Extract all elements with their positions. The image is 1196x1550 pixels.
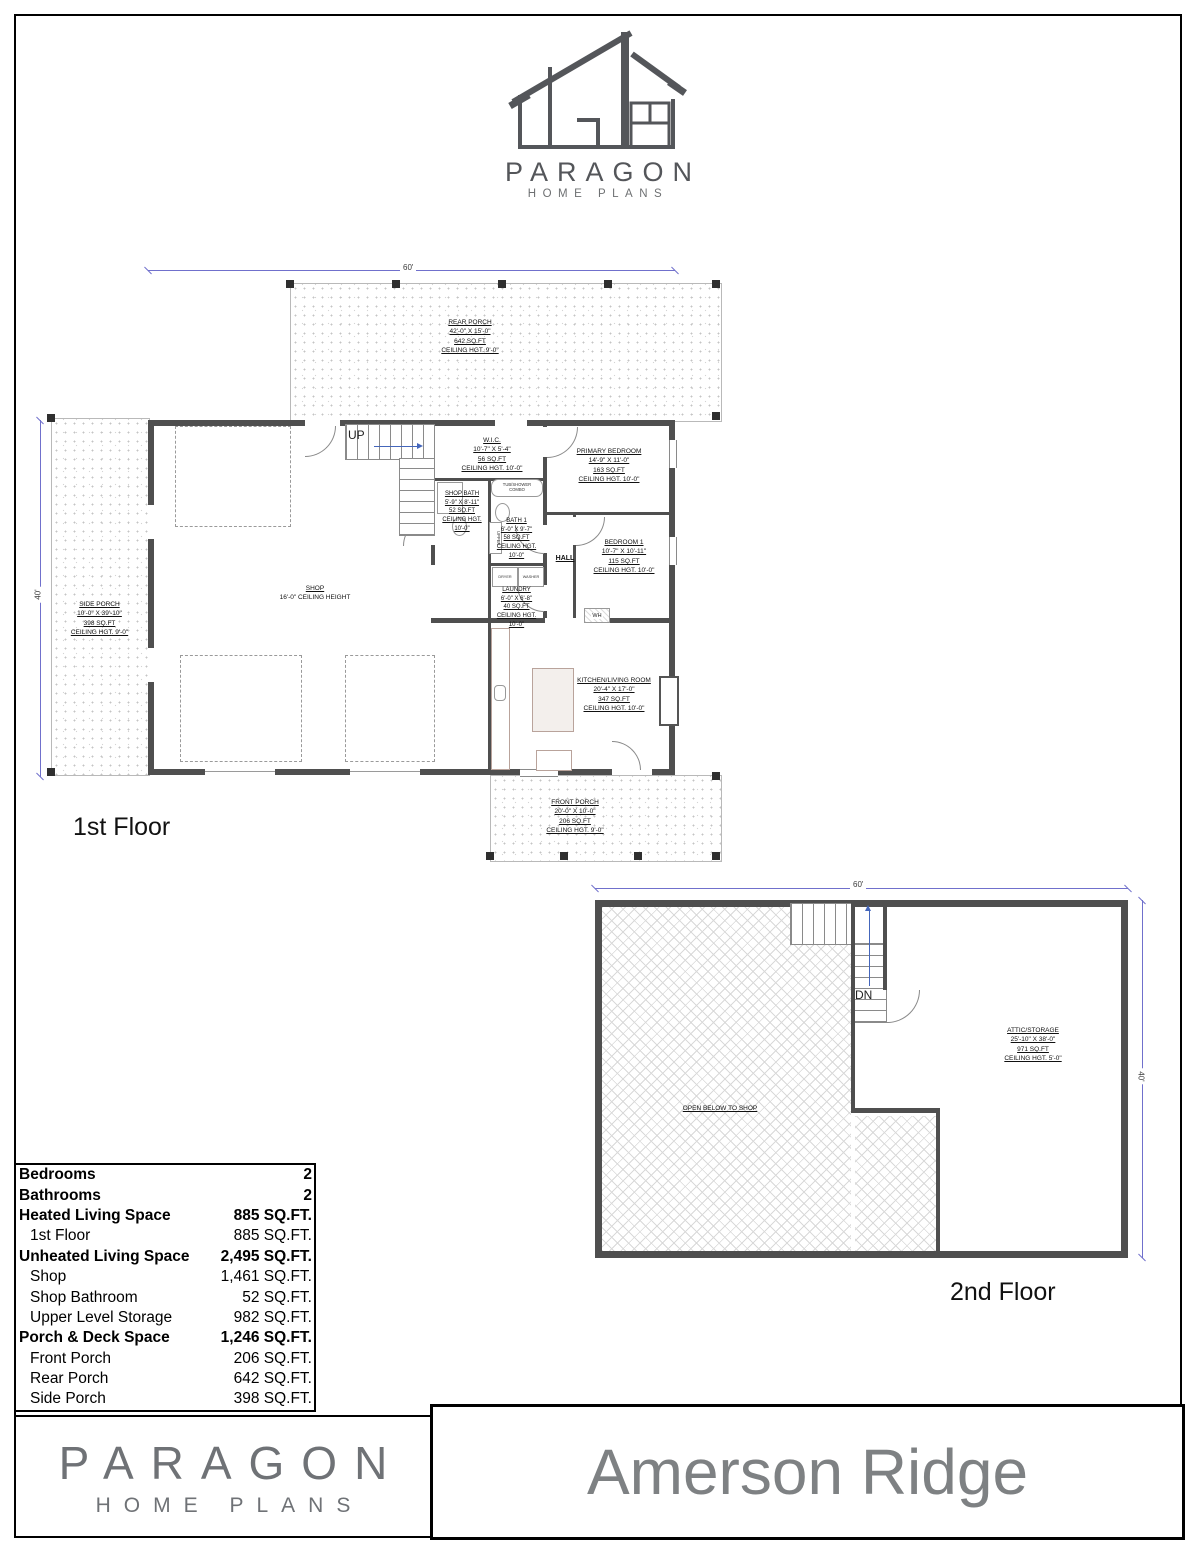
table-row: Shop1,461 SQ.FT. xyxy=(16,1267,314,1287)
stairs-up-arrowhead xyxy=(417,443,423,449)
footer-brand-box: PARAGON HOME PLANS xyxy=(14,1415,432,1538)
attic-storage-label: ATTIC/STORAGE 25'-10" X 38'-0" 971 SQ.FT… xyxy=(972,1026,1094,1064)
table-row: Side Porch398 SQ.FT. xyxy=(16,1389,314,1409)
shop-dashed-zone xyxy=(175,426,291,527)
row-label: Upper Level Storage xyxy=(30,1309,172,1327)
table-row: Heated Living Space885 SQ.FT. xyxy=(16,1206,314,1226)
porch-column xyxy=(712,852,720,860)
washer-box: WASHER xyxy=(518,567,544,587)
row-value: 885 SQ.FT. xyxy=(234,1207,312,1225)
washer-label: WASHER xyxy=(523,575,540,579)
row-label: Heated Living Space xyxy=(19,1207,171,1225)
f2-dim-right-label: 40' xyxy=(1137,1068,1146,1084)
f1-wall-left xyxy=(148,420,154,775)
row-label: Bathrooms xyxy=(19,1187,101,1205)
table-row: Porch & Deck Space1,246 SQ.FT. xyxy=(16,1328,314,1348)
row-value: 398 SQ.FT. xyxy=(234,1390,312,1408)
shop-bath-label: SHOP BATH 5'-9" X 8'-11" 52 SQ.FT CEILIN… xyxy=(434,490,490,533)
open-below-area xyxy=(602,907,851,1251)
garage-door-opening xyxy=(350,769,420,775)
row-label: Side Porch xyxy=(30,1390,106,1408)
shop-name: SHOP xyxy=(255,584,375,593)
f2-stairs xyxy=(790,903,855,945)
stairs-dn-arrow xyxy=(869,910,870,986)
tub-label: TUB/SHOWER COMBO xyxy=(503,483,531,493)
dryer-box: DRYER xyxy=(492,567,518,587)
row-label: Shop xyxy=(30,1268,66,1286)
stairs-dn-label: DN xyxy=(855,988,872,1002)
table-row: 1st Floor885 SQ.FT. xyxy=(16,1226,314,1246)
row-label: Porch & Deck Space xyxy=(19,1329,170,1347)
floor1-title: 1st Floor xyxy=(73,813,170,842)
f2-int-wall xyxy=(936,1108,940,1258)
porch-column xyxy=(47,414,55,422)
table-row: Upper Level Storage982 SQ.FT. xyxy=(16,1308,314,1328)
row-label: Bedrooms xyxy=(19,1166,96,1184)
f2-int-wall xyxy=(851,1108,940,1113)
row-label: Front Porch xyxy=(30,1350,111,1368)
wh-label: WH xyxy=(591,613,602,619)
f2-dim-top-label: 60' xyxy=(850,880,866,889)
porch-column xyxy=(712,772,720,780)
porch-column xyxy=(712,280,720,288)
row-value: 982 SQ.FT. xyxy=(234,1309,312,1327)
footer-brand: PARAGON xyxy=(42,1436,405,1490)
kitchen-sink xyxy=(494,685,506,701)
footer-brand-sub: HOME PLANS xyxy=(83,1494,364,1518)
f1-int-wall xyxy=(543,512,675,515)
table-row: Unheated Living Space2,495 SQ.FT. xyxy=(16,1247,314,1267)
row-label: Rear Porch xyxy=(30,1370,108,1388)
porch-column xyxy=(560,852,568,860)
porch-column xyxy=(47,768,55,776)
porch-column xyxy=(286,280,294,288)
laundry-label: LAUNDRY 6'-0" X 6'-8" 40 SQ.FT CEILING H… xyxy=(489,586,544,629)
stairs-dn-arrowhead xyxy=(865,905,871,911)
tub-shower: TUB/SHOWER COMBO xyxy=(491,479,543,497)
house-logo-icon xyxy=(505,28,691,152)
primary-bedroom-label: PRIMARY BEDROOM 14'-9" X 11'-0" 163 SQ.F… xyxy=(553,447,665,485)
open-below-label: OPEN BELOW TO SHOP xyxy=(640,1104,800,1113)
plan-name: Amerson Ridge xyxy=(587,1435,1028,1509)
table-row: Bathrooms2 xyxy=(16,1185,314,1205)
stairs-up-label: UP xyxy=(348,428,365,442)
area-summary-table: Bedrooms2 Bathrooms2 Heated Living Space… xyxy=(14,1163,316,1412)
garage-door-line xyxy=(205,771,275,772)
garage-door-line xyxy=(350,771,420,772)
row-value: 2,495 SQ.FT. xyxy=(221,1248,312,1266)
logo-brand: PARAGON xyxy=(505,157,691,188)
kitchen-living-label: KITCHEN/LIVING ROOM 20'-4" X 17'-0" 347 … xyxy=(553,676,675,714)
stairs-up-arrow xyxy=(374,446,418,447)
porch-column xyxy=(712,412,720,420)
table-row: Bedrooms2 xyxy=(16,1165,314,1185)
row-value: 1,246 SQ.FT. xyxy=(221,1329,312,1347)
table-row: Rear Porch642 SQ.FT. xyxy=(16,1369,314,1389)
side-porch-label: SIDE PORCH 10'-0" X 39'-10" 398 SQ.FT CE… xyxy=(51,600,148,638)
row-value: 2 xyxy=(303,1166,312,1184)
row-value: 642 SQ.FT. xyxy=(234,1370,312,1388)
side-door-opening xyxy=(148,648,154,682)
logo-sub: HOME PLANS xyxy=(505,188,691,200)
row-value: 52 SQ.FT. xyxy=(242,1289,312,1307)
shop-ceiling: 16'-0" CEILING HEIGHT xyxy=(280,594,351,601)
table-row: Front Porch206 SQ.FT. xyxy=(16,1349,314,1369)
f2-int-wall xyxy=(883,900,887,990)
open-below-area xyxy=(855,1116,938,1251)
side-door-opening xyxy=(148,505,154,539)
row-value: 2 xyxy=(303,1187,312,1205)
rear-door-opening xyxy=(495,420,527,426)
row-value: 206 SQ.FT. xyxy=(234,1350,312,1368)
door-opening xyxy=(545,618,589,623)
plan-sheet: PARAGON HOME PLANS 60' 40' xyxy=(0,0,1196,1550)
bedroom1-label: BEDROOM 1 10'-7" X 10'-11" 115 SQ.FT CEI… xyxy=(572,538,676,576)
hall-label: HALL xyxy=(546,555,584,562)
f2-wall-right xyxy=(1121,900,1128,1258)
f1-stairs xyxy=(399,458,435,536)
wic-label: W.I.C. 10'-7" X 5'-4" 56 SQ.FT CEILING H… xyxy=(446,436,538,474)
row-label: Shop Bathroom xyxy=(30,1289,138,1307)
porch-column xyxy=(634,852,642,860)
footer-title-box: Amerson Ridge xyxy=(430,1404,1185,1540)
f1-int-wall xyxy=(488,563,546,566)
side-porch xyxy=(51,418,150,776)
dryer-label: DRYER xyxy=(498,575,511,579)
logo: PARAGON HOME PLANS xyxy=(505,28,691,200)
shop-dashed-zone xyxy=(180,655,302,762)
shop-label: SHOP 16'-0" CEILING HEIGHT xyxy=(255,584,375,603)
f2-wall-top xyxy=(595,900,1128,907)
range xyxy=(536,750,572,771)
porch-column xyxy=(498,280,506,288)
porch-column xyxy=(392,280,400,288)
front-porch-label: FRONT PORCH 20'-0" X 10'-0" 206 SQ.FT CE… xyxy=(520,798,630,836)
porch-column xyxy=(604,280,612,288)
f1-dim-left-label: 40' xyxy=(34,586,43,602)
garage-door-opening xyxy=(205,769,275,775)
f2-int-wall xyxy=(851,900,855,1112)
f2-wall-bottom xyxy=(595,1251,1128,1258)
table-row: Shop Bathroom52 SQ.FT. xyxy=(16,1287,314,1307)
window xyxy=(669,440,677,468)
porch-column xyxy=(486,852,494,860)
floor2-title: 2nd Floor xyxy=(950,1278,1056,1307)
rear-porch-label: REAR PORCH 42'-0" X 15'-0" 642 SQ.FT CEI… xyxy=(410,318,530,356)
row-value: 885 SQ.FT. xyxy=(234,1227,312,1245)
shop-dashed-zone xyxy=(345,655,435,762)
bath1-label: BATH 1 6'-0" X 9'-7" 58 SQ.FT CEILING HG… xyxy=(489,517,544,560)
f1-dim-top-label: 60' xyxy=(400,263,416,272)
f2-wall-left xyxy=(595,900,602,1258)
row-label: 1st Floor xyxy=(30,1227,90,1245)
water-heater: WH xyxy=(584,608,610,623)
row-value: 1,461 SQ.FT. xyxy=(221,1268,312,1286)
row-label: Unheated Living Space xyxy=(19,1248,190,1266)
